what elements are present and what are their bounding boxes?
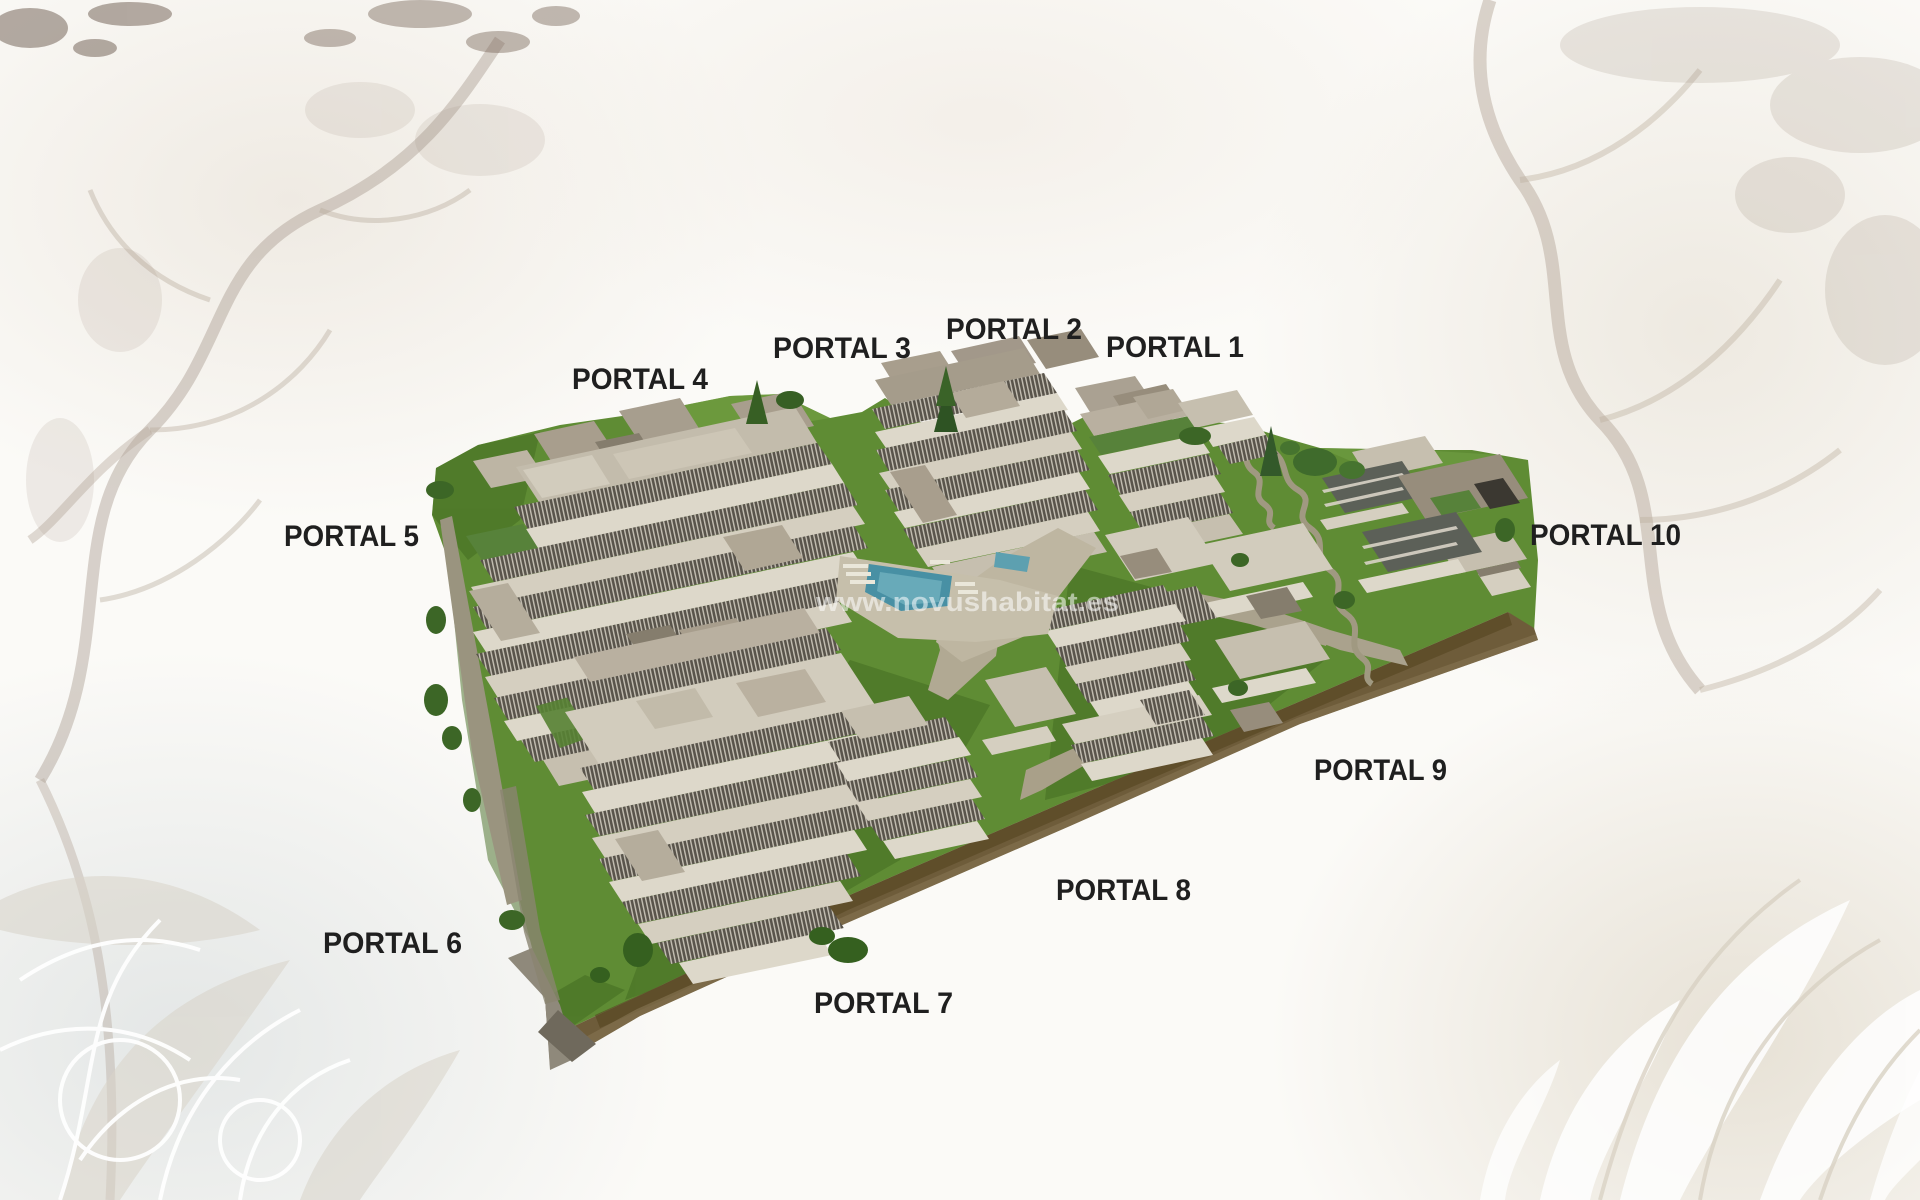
svg-text:PORTAL 6: PORTAL 6 bbox=[323, 927, 462, 960]
svg-text:PORTAL 3: PORTAL 3 bbox=[773, 332, 911, 365]
svg-text:PORTAL 8: PORTAL 8 bbox=[1056, 874, 1191, 907]
svg-text:www.novushabitat.es: www.novushabitat.es bbox=[815, 587, 1119, 617]
svg-text:PORTAL 10: PORTAL 10 bbox=[1530, 519, 1681, 552]
svg-text:PORTAL 5: PORTAL 5 bbox=[284, 520, 419, 553]
svg-text:PORTAL 9: PORTAL 9 bbox=[1314, 754, 1447, 787]
svg-text:PORTAL 1: PORTAL 1 bbox=[1106, 331, 1244, 364]
svg-text:PORTAL 4: PORTAL 4 bbox=[572, 363, 708, 396]
svg-text:PORTAL 2: PORTAL 2 bbox=[946, 313, 1082, 346]
svg-text:PORTAL 7: PORTAL 7 bbox=[814, 987, 953, 1020]
